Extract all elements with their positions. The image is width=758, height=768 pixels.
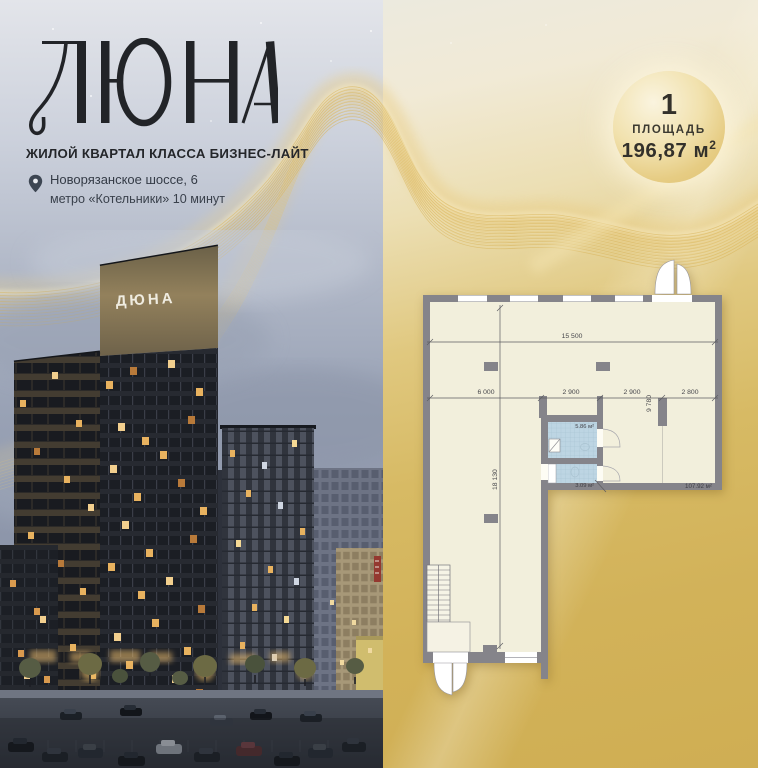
dim-right-vertical-label: 9 780 [646,395,653,412]
star-dot [52,28,54,30]
brand-tagline: ЖИЛОЙ КВАРТАЛ КЛАССА БИЗНЕС-ЛАЙТ [26,146,356,161]
metro-line: метро «Котельники» 10 минут [50,192,356,206]
dim-seg1-label: 6 000 [477,389,494,396]
entry-door-leaves [655,260,691,294]
building-render: ДЮНА [0,230,383,768]
area-bath-large-label: 5.86 м² [575,424,594,430]
star-dot [260,22,262,24]
red-sign [374,556,381,582]
badge-area-label: ПЛОЩАДЬ [632,124,705,136]
dim-top-label: 15 500 [562,333,583,340]
logo-dyuna [26,38,278,138]
leg-door-opening [433,652,468,663]
dim-left-vertical-label: 18 130 [492,469,499,490]
dim-seg2-label: 2 900 [562,389,579,396]
star-dot [370,30,372,32]
badge-number: 1 [661,91,677,120]
badge-area-number: 196,87 [622,139,688,162]
dim-seg3-label: 2 900 [623,389,640,396]
star-dot [545,24,547,26]
address-block: Новорязанское шоссе, 6 метро «Котельники… [26,172,356,206]
building-sign-dyuna: ДЮНА [115,290,176,310]
badge-area-value: 196,87 м2 [622,138,717,163]
area-main-label: 107.92 м² [685,483,712,490]
star-dot [450,42,452,44]
location-pin-icon [28,174,43,193]
badge-area-sup: 2 [709,138,716,152]
area-badge: 1 ПЛОЩАДЬ 196,87 м2 [613,71,725,183]
floor-plan: 15 500 6 000 2 900 2 900 2 800 9 780 18 … [383,240,758,710]
badge-area-unit: м [694,139,710,162]
header-block: ЖИЛОЙ КВАРТАЛ КЛАССА БИЗНЕС-ЛАЙТ Новоряз… [26,38,356,206]
flyer-canvas: ДЮНА [0,0,758,768]
dim-seg4-label: 2 800 [681,389,698,396]
area-bath-small-label: 3.09 м² [575,483,594,489]
address-line: Новорязанское шоссе, 6 [50,172,356,187]
leg-door-leaves [434,663,467,695]
entry-door-opening [652,295,692,302]
